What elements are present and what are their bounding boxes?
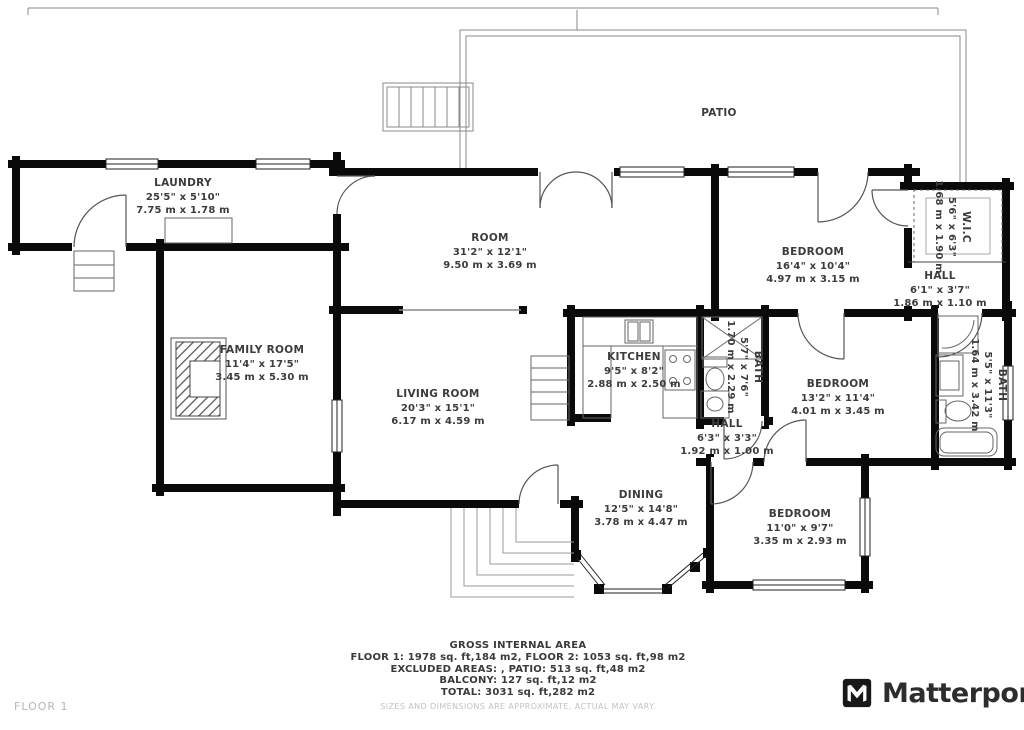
room-label-kitchen: KITCHEN 9'5" x 8'2" 2.88 m x 2.50 m <box>587 351 681 391</box>
room-label-bath-1: BATH 5'7" x 7'6" 1.70 m x 2.29 m <box>724 320 764 414</box>
room-name: ROOM <box>443 232 537 246</box>
room-label-bath-2: BATH 5'5" x 11'3" 1.64 m x 3.42 m <box>968 338 1008 432</box>
room-dim-metric: 1.64 m x 3.42 m <box>968 338 981 432</box>
room-name: KITCHEN <box>587 351 681 365</box>
room-name: BATH <box>994 338 1008 432</box>
room-dim-metric: 2.88 m x 2.50 m <box>587 378 681 391</box>
room-name: BEDROOM <box>753 508 847 522</box>
room-label-living-room: LIVING ROOM 20'3" x 15'1" 6.17 m x 4.59 … <box>391 388 485 428</box>
room-dim-imperial: 6'3" x 3'3" <box>680 432 774 445</box>
room-label-patio: PATIO <box>701 107 737 121</box>
room-dim-metric: 1.68 m x 1.90 m <box>932 180 945 274</box>
floorplan-drawing <box>0 0 1024 730</box>
room-dim-imperial: 5'7" x 7'6" <box>737 320 750 414</box>
room-label-hall-2: HALL 6'3" x 3'3" 1.92 m x 1.00 m <box>680 418 774 458</box>
room-dim-imperial: 5'5" x 11'3" <box>981 338 994 432</box>
room-dim-imperial: 11'4" x 17'5" <box>215 358 309 371</box>
area-summary: GROSS INTERNAL AREA FLOOR 1: 1978 sq. ft… <box>318 640 718 711</box>
room-name: LIVING ROOM <box>391 388 485 402</box>
brand-name: Matterport <box>882 678 1024 709</box>
room-dim-metric: 1.70 m x 2.29 m <box>724 320 737 414</box>
room-label-room: ROOM 31'2" x 12'1" 9.50 m x 3.69 m <box>443 232 537 272</box>
room-dim-imperial: 6'1" x 3'7" <box>893 284 987 297</box>
room-dim-metric: 3.35 m x 2.93 m <box>753 535 847 548</box>
brand-logo: Matterport <box>840 676 1024 710</box>
area-summary-disclaimer: SIZES AND DIMENSIONS ARE APPROXIMATE, AC… <box>318 702 718 711</box>
room-label-bedroom-2: BEDROOM 13'2" x 11'4" 4.01 m x 3.45 m <box>791 378 885 418</box>
room-dim-metric: 1.86 m x 1.10 m <box>893 297 987 310</box>
stairs <box>74 251 569 420</box>
room-name: LAUNDRY <box>136 177 230 191</box>
room-dim-metric: 3.45 m x 5.30 m <box>215 371 309 384</box>
room-dim-imperial: 9'5" x 8'2" <box>587 365 681 378</box>
room-label-bedroom-3: BEDROOM 11'0" x 9'7" 3.35 m x 2.93 m <box>753 508 847 548</box>
area-summary-line: TOTAL: 3031 sq. ft,282 m2 <box>318 687 718 699</box>
room-label-laundry: LAUNDRY 25'5" x 5'10" 7.75 m x 1.78 m <box>136 177 230 217</box>
room-dim-metric: 3.78 m x 4.47 m <box>594 516 688 529</box>
room-name: W.I.C <box>958 180 972 274</box>
floor-label: FLOOR 1 <box>14 700 69 713</box>
room-name: DINING <box>594 489 688 503</box>
room-dim-imperial: 11'0" x 9'7" <box>753 522 847 535</box>
room-dim-imperial: 31'2" x 12'1" <box>443 246 537 259</box>
room-dim-metric: 7.75 m x 1.78 m <box>136 204 230 217</box>
room-dim-metric: 1.92 m x 1.00 m <box>680 445 774 458</box>
room-label-wic: W.I.C 5'6" x 6'3" 1.68 m x 1.90 m <box>932 180 972 274</box>
room-dim-imperial: 16'4" x 10'4" <box>766 260 860 273</box>
area-summary-title: GROSS INTERNAL AREA <box>318 640 718 652</box>
matterport-m-icon <box>840 676 874 710</box>
room-dim-imperial: 5'6" x 6'3" <box>945 180 958 274</box>
room-name: BATH <box>750 320 764 414</box>
room-dim-imperial: 25'5" x 5'10" <box>136 191 230 204</box>
patio-outline <box>28 8 966 186</box>
room-dim-metric: 4.97 m x 3.15 m <box>766 273 860 286</box>
wall-columns <box>393 306 713 594</box>
room-dim-metric: 4.01 m x 3.45 m <box>791 405 885 418</box>
room-dim-imperial: 12'5" x 14'8" <box>594 503 688 516</box>
area-summary-line: EXCLUDED AREAS: , PATIO: 513 sq. ft,48 m… <box>318 664 718 676</box>
area-summary-line: BALCONY: 127 sq. ft,12 m2 <box>318 675 718 687</box>
room-dim-metric: 9.50 m x 3.69 m <box>443 259 537 272</box>
deck-steps <box>451 508 574 597</box>
room-dim-imperial: 13'2" x 11'4" <box>791 392 885 405</box>
room-name: BEDROOM <box>791 378 885 392</box>
room-name: FAMILY ROOM <box>215 344 309 358</box>
room-label-family-room: FAMILY ROOM 11'4" x 17'5" 3.45 m x 5.30 … <box>215 344 309 384</box>
room-name: HALL <box>680 418 774 432</box>
area-summary-line: FLOOR 1: 1978 sq. ft,184 m2, FLOOR 2: 10… <box>318 652 718 664</box>
room-label-hall-1: HALL 6'1" x 3'7" 1.86 m x 1.10 m <box>893 270 987 310</box>
room-dim-imperial: 20'3" x 15'1" <box>391 402 485 415</box>
room-label-bedroom-1: BEDROOM 16'4" x 10'4" 4.97 m x 3.15 m <box>766 246 860 286</box>
floorplan-page: LAUNDRY 25'5" x 5'10" 7.75 m x 1.78 m PA… <box>0 0 1024 730</box>
room-name: HALL <box>893 270 987 284</box>
room-dim-metric: 6.17 m x 4.59 m <box>391 415 485 428</box>
room-name: PATIO <box>701 107 737 121</box>
room-label-dining: DINING 12'5" x 14'8" 3.78 m x 4.47 m <box>594 489 688 529</box>
room-name: BEDROOM <box>766 246 860 260</box>
